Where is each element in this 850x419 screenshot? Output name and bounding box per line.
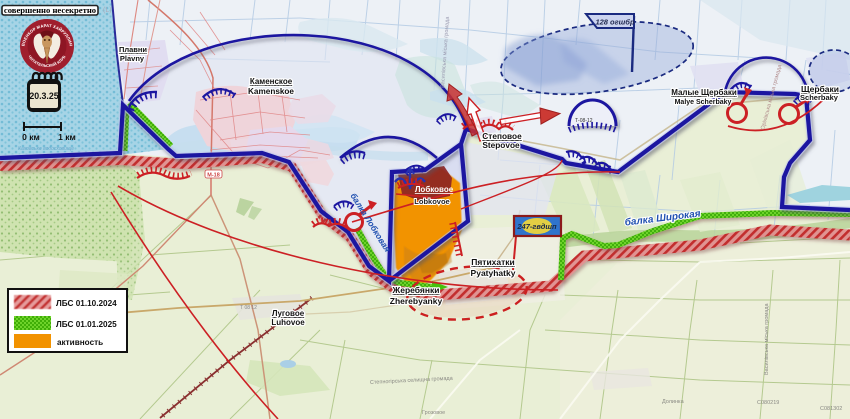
svg-text:Долинка: Долинка <box>662 399 685 405</box>
svg-text:Каховське водосховище: Каховське водосховище <box>18 146 74 152</box>
svg-text:Лобковое: Лобковое <box>415 185 454 194</box>
svg-text:Жеребянки: Жеребянки <box>392 285 440 295</box>
svg-text:Т 08 12: Т 08 12 <box>240 305 257 311</box>
svg-text:Грозовое: Грозовое <box>422 410 445 416</box>
svg-text:20.3.25: 20.3.25 <box>29 91 58 101</box>
svg-text:Scherbaky: Scherbaky <box>800 93 839 102</box>
svg-text:0 км: 0 км <box>22 132 40 142</box>
svg-text:(L): (L) <box>103 7 112 14</box>
svg-text:1 км: 1 км <box>58 132 76 142</box>
svg-text:247-гвдшп: 247-гвдшп <box>516 222 557 231</box>
svg-text:Malye Scherbaky: Malye Scherbaky <box>675 99 732 106</box>
svg-text:Zherebyanky: Zherebyanky <box>390 296 443 306</box>
svg-text:Plavny: Plavny <box>120 54 145 63</box>
svg-text:Каменское: Каменское <box>250 77 293 86</box>
svg-text:Т-08-12: Т-08-12 <box>575 118 593 124</box>
svg-text:128 огшбр: 128 огшбр <box>595 18 634 27</box>
svg-text:Lobkovoe: Lobkovoe <box>414 197 449 206</box>
svg-text:совершенно несекретно: совершенно несекретно <box>4 5 96 15</box>
svg-text:ЛБС 01.01.2025: ЛБС 01.01.2025 <box>56 320 117 329</box>
svg-text:С080219: С080219 <box>757 400 779 406</box>
svg-text:Малые Щербаки: Малые Щербаки <box>671 88 737 97</box>
svg-text:Pyatyhatky: Pyatyhatky <box>471 268 516 278</box>
svg-text:С081302: С081302 <box>820 406 842 412</box>
svg-text:Luhovoe: Luhovoe <box>271 318 305 327</box>
svg-text:активность: активность <box>57 338 103 347</box>
svg-text:М-18: М-18 <box>207 173 220 179</box>
svg-text:Kamenskoe: Kamenskoe <box>248 87 294 96</box>
svg-text:Василівська міська громада: Василівська міська громада <box>764 303 770 375</box>
svg-text:Пятихатки: Пятихатки <box>471 257 515 267</box>
svg-text:Луговое: Луговое <box>272 309 305 318</box>
svg-text:Stepovoe: Stepovoe <box>482 140 520 150</box>
svg-text:Плавни: Плавни <box>119 45 147 54</box>
svg-text:ЛБС 01.10.2024: ЛБС 01.10.2024 <box>56 299 117 308</box>
